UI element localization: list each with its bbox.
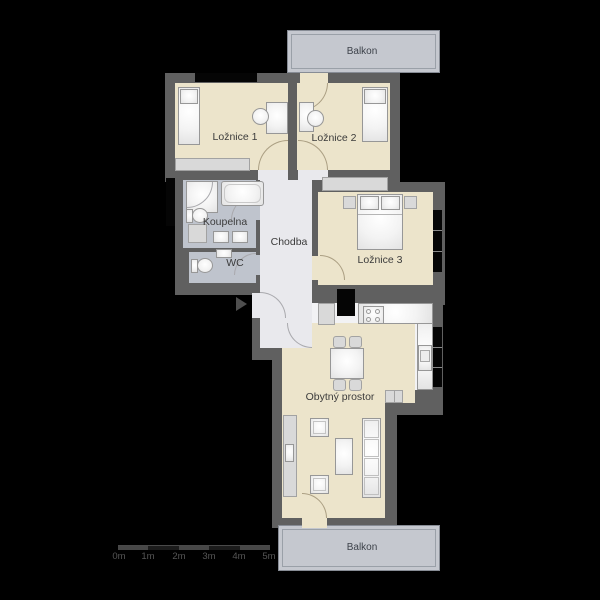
door-gap-bedroom3 — [312, 256, 318, 280]
scale-label-0m: 0m — [112, 552, 125, 562]
scale-segment — [179, 546, 209, 550]
sink-symbol — [213, 231, 229, 243]
scale-bar — [118, 545, 270, 550]
bathroom-window — [166, 178, 175, 226]
bathtub-inner — [224, 184, 261, 203]
kitchen-window — [433, 327, 442, 387]
door-gap-balcony-bottom — [302, 518, 327, 528]
scale-segment — [148, 546, 178, 550]
scale-label-5m: 5m — [262, 552, 275, 562]
scale-segment — [209, 546, 239, 550]
toilet-bowl — [197, 258, 213, 273]
dining-chair-symbol — [333, 336, 346, 348]
door-gap-wc — [256, 255, 260, 275]
scale-label-3m: 3m — [202, 552, 215, 562]
scale-segment — [240, 546, 270, 550]
balcony-label-bottom: Balkon — [347, 543, 378, 553]
burner — [375, 317, 380, 322]
sofa-cushion — [364, 439, 379, 457]
sofa-cushion — [364, 477, 379, 495]
window-tick — [433, 347, 442, 348]
door-gap-bedroom1 — [258, 170, 288, 180]
desk-symbol — [266, 102, 288, 134]
dining-chair-symbol — [333, 379, 346, 391]
pillow-symbol — [360, 196, 379, 210]
sofa-cushion — [364, 458, 379, 476]
room-label-wc: WC — [226, 258, 244, 269]
door-gap-balcony-top — [300, 73, 328, 83]
burner — [375, 309, 380, 314]
balcony-label-top: Balkon — [347, 47, 378, 57]
scale-label-2m: 2m — [172, 552, 185, 562]
pillow-symbol — [364, 89, 386, 104]
coffee-table-symbol — [335, 438, 353, 475]
room-label-living: Obytný prostor — [306, 392, 375, 403]
tv-symbol — [285, 444, 294, 462]
pillow-symbol — [180, 89, 198, 104]
burner — [366, 309, 371, 314]
cabinet-divider — [394, 390, 395, 403]
blanket-line — [358, 214, 402, 215]
dining-chair-symbol — [349, 379, 362, 391]
bedroom1-window — [195, 73, 257, 82]
kitchen-sink-basin — [420, 350, 430, 362]
kitchen-cabinet-symbol — [318, 303, 335, 325]
window-tick — [433, 251, 442, 252]
nightstand-symbol — [343, 196, 356, 209]
chair-symbol — [252, 108, 269, 125]
pillow-symbol — [381, 196, 400, 210]
entrance-arrow-icon — [236, 297, 247, 311]
scale-segment — [118, 546, 148, 550]
burner — [366, 317, 371, 322]
room-label-bedroom2: Ložnice 2 — [312, 133, 357, 144]
dining-table-symbol — [330, 348, 364, 379]
chair-symbol — [307, 110, 324, 127]
room-label-bedroom3: Ložnice 3 — [358, 255, 403, 266]
armchair-seat — [313, 421, 326, 434]
window-tick — [433, 230, 442, 231]
scale-label-4m: 4m — [232, 552, 245, 562]
closet-symbol — [322, 177, 388, 191]
sofa-cushion — [364, 420, 379, 438]
utility-shaft — [337, 289, 355, 316]
armchair-seat — [313, 478, 326, 491]
sink-symbol — [232, 231, 248, 243]
dining-chair-symbol — [349, 336, 362, 348]
window-tick — [433, 367, 442, 368]
room-label-bedroom1: Ložnice 1 — [213, 132, 258, 143]
room-label-bathroom: Koupelna — [203, 217, 247, 228]
door-gap-entry — [252, 293, 260, 318]
scale-label-1m: 1m — [141, 552, 154, 562]
floor-plan: Ložnice 1 Ložnice 2 Koupelna Chodba WC L… — [0, 0, 600, 600]
wardrobe-symbol — [175, 158, 250, 171]
bedroom3-window — [433, 210, 442, 272]
room-label-hall: Chodba — [271, 237, 308, 248]
nightstand-symbol — [404, 196, 417, 209]
